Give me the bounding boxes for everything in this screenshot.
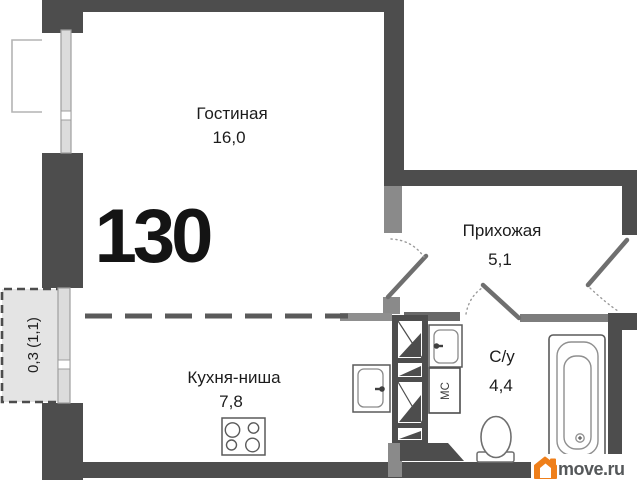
wall-living-right [384, 12, 404, 186]
window-living-room-notch [61, 111, 71, 120]
stove-icon [222, 418, 265, 455]
vent-shaft [392, 315, 428, 443]
room-area-kitchen: 7,8 [219, 392, 243, 411]
wall-left-middle [42, 153, 83, 288]
room-label-bathroom: С/у [489, 347, 515, 366]
wall-top-left-block [42, 0, 83, 33]
apartment-number: 130 [95, 194, 212, 279]
balcony-door-notch [58, 360, 70, 369]
room-label-hallway: Прихожая [463, 221, 542, 240]
room-label-kitchen: Кухня-ниша [187, 368, 281, 387]
door-arc-bathroom [466, 288, 482, 314]
room-area-bathroom: 4,4 [489, 376, 513, 395]
vent-shaft-cell [398, 428, 422, 440]
door-leaf-hallway [388, 256, 426, 297]
wall-entry-corner [608, 313, 637, 330]
floor-plan-drawing: 130 Гостиная 16,0 Прихожая 5,1 Кухня-ниш… [0, 0, 640, 480]
bathroom-sink [429, 325, 462, 367]
vent-shaft-cell [398, 321, 422, 358]
wall-right-upper [622, 170, 637, 235]
wall-top [83, 0, 404, 12]
door-leaf-entrance [588, 240, 627, 285]
partition-bath-right [520, 314, 608, 322]
room-label-living: Гостиная [196, 104, 267, 123]
jamb-hall-door-bottom [383, 297, 400, 314]
wall-hallway-top [404, 170, 622, 186]
wall-left-lower [42, 403, 83, 480]
room-area-living: 16,0 [212, 128, 245, 147]
bathtub [549, 335, 605, 462]
floor-plan: 130 Гостиная 16,0 Прихожая 5,1 Кухня-ниш… [0, 0, 640, 480]
vent-shaft-cell [398, 382, 422, 423]
watermark: move.ru [531, 454, 640, 480]
labels: 130 Гостиная 16,0 Прихожая 5,1 Кухня-ниш… [25, 104, 541, 411]
partition-shaft-bottom [388, 443, 402, 477]
wall-shaft-chamfer [400, 443, 464, 461]
french-balcony-rail [12, 40, 42, 112]
balcony-area-label: 0,3 (1,1) [25, 317, 42, 373]
room-area-hallway: 5,1 [488, 250, 512, 269]
jamb-hall-door-top [384, 186, 402, 233]
balcony-door-glazing [58, 288, 70, 403]
kitchen-sink [353, 365, 390, 412]
door-leaf-bathroom [483, 285, 519, 318]
window-living-room [61, 30, 71, 153]
washing-machine-label: МС [440, 382, 452, 400]
wall-right-lower [608, 330, 622, 463]
toilet [477, 417, 514, 463]
door-arc-hallway [391, 239, 424, 257]
door-arc-entrance [590, 288, 618, 311]
vent-shaft-cell [398, 363, 422, 377]
watermark-brand-text: move.ru [558, 459, 625, 479]
